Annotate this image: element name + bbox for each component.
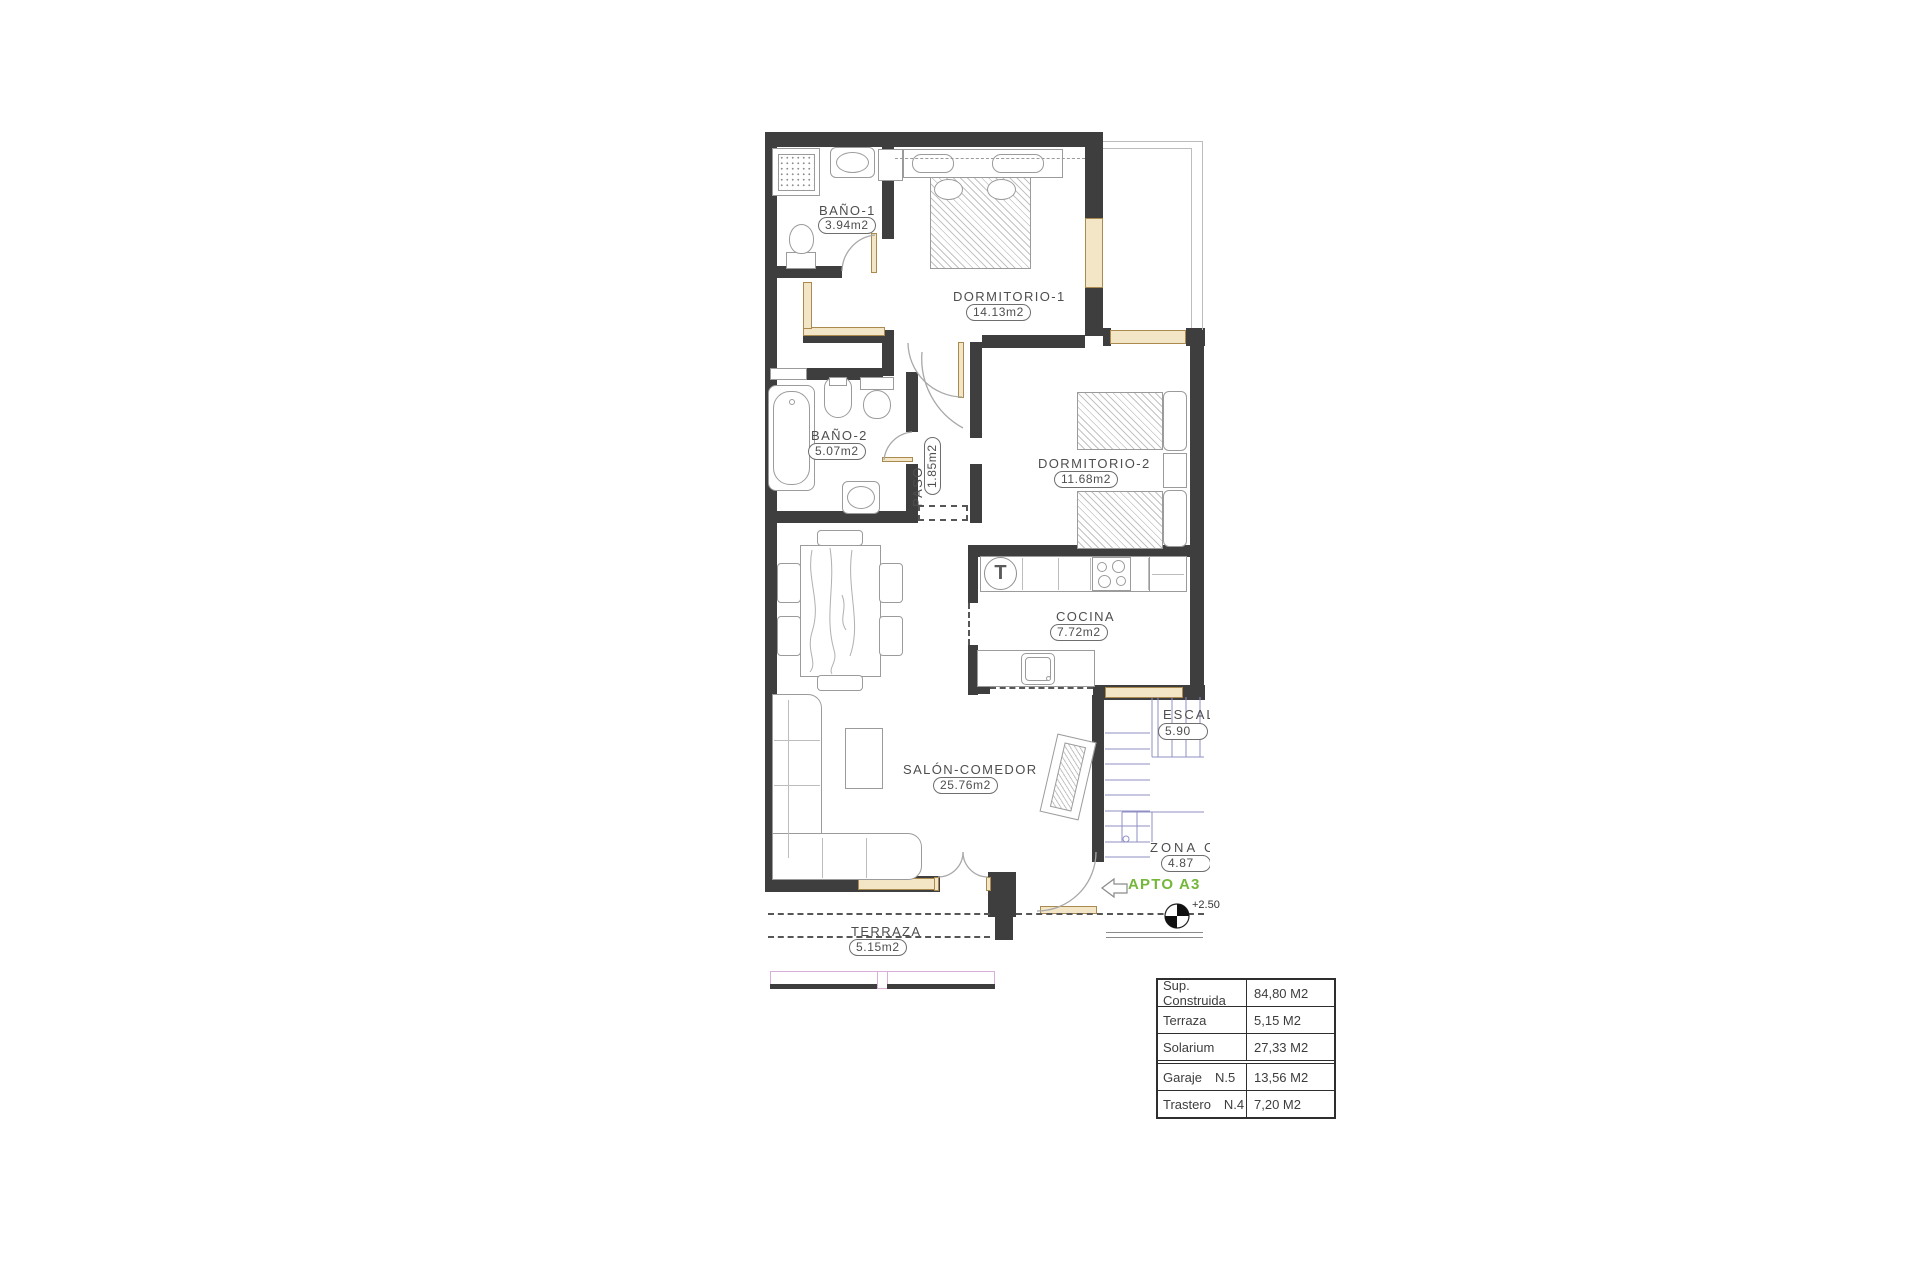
row-label-text: Garaje xyxy=(1163,1070,1202,1085)
room-label-bano2: BAÑO-2 xyxy=(811,428,868,443)
door-arc-dormitorio2 xyxy=(922,352,963,428)
room-area-dormitorio2: 11.68m2 xyxy=(1054,471,1118,488)
door-arc-bano1 xyxy=(842,235,875,271)
door-arc-dormitorio1 xyxy=(908,343,962,397)
table-row: Solarium 27,33 M2 xyxy=(1158,1033,1334,1061)
entry-door-arc xyxy=(1037,852,1096,911)
row-label-text: Sup. Construida xyxy=(1163,978,1246,1008)
apartment-label: APTO A3 xyxy=(1128,876,1201,893)
grain-line xyxy=(810,550,815,672)
door-arc-bano2 xyxy=(884,432,912,460)
floor-plan: T xyxy=(0,0,1920,1280)
room-label-escalera: ESCAL xyxy=(1163,707,1210,722)
row-label-text: Trastero xyxy=(1163,1097,1211,1112)
table-row-value: 7,20 M2 xyxy=(1247,1097,1334,1112)
room-area-paso: 1.85m2 xyxy=(924,437,941,495)
room-label-terraza: TERRAZA xyxy=(851,924,921,939)
table-row-label: TrasteroN.4 xyxy=(1158,1091,1247,1117)
zona-comun-label-clip: ZONA C 4.87 xyxy=(1103,838,1210,878)
table-row-label: Sup. Construida xyxy=(1158,980,1247,1006)
table-row-label: Terraza xyxy=(1158,1007,1247,1033)
table-row: GarajeN.5 13,56 M2 xyxy=(1158,1063,1334,1090)
grain-knot xyxy=(842,595,846,630)
room-area-cocina: 7.72m2 xyxy=(1050,624,1108,641)
door-swing-arcs xyxy=(842,235,1096,911)
room-label-dormitorio1: DORMITORIO-1 xyxy=(953,289,1066,304)
row-label-text: Solarium xyxy=(1163,1040,1214,1055)
table-row: Terraza 5,15 M2 xyxy=(1158,1006,1334,1033)
grain-line xyxy=(830,548,835,674)
grain-line xyxy=(850,550,855,656)
row-unit-number: N.5 xyxy=(1215,1070,1235,1085)
table-row-value: 5,15 M2 xyxy=(1247,1013,1334,1028)
table-row-label: Solarium xyxy=(1158,1034,1247,1060)
table-row: TrasteroN.4 7,20 M2 xyxy=(1158,1090,1334,1117)
room-label-salon: SALÓN-COMEDOR xyxy=(903,762,1038,777)
table-row-value: 13,56 M2 xyxy=(1247,1070,1334,1085)
table-row-label: GarajeN.5 xyxy=(1158,1064,1247,1090)
room-area-bano1: 3.94m2 xyxy=(818,217,876,234)
room-label-zona-comun: ZONA C xyxy=(1150,840,1210,855)
room-label-dormitorio2: DORMITORIO-2 xyxy=(1038,456,1151,471)
escalera-label-clip: ESCAL 5.90 xyxy=(1103,703,1210,748)
level-mark: +2.50 xyxy=(1192,899,1220,911)
level-marker-icon xyxy=(1165,904,1189,928)
table-wood-grain xyxy=(810,548,855,674)
room-area-escalera: 5.90 xyxy=(1158,723,1208,740)
room-label-bano1: BAÑO-1 xyxy=(819,203,876,218)
area-summary-table: Sup. Construida 84,80 M2 Terraza 5,15 M2… xyxy=(1156,978,1336,1119)
room-area-bano2: 5.07m2 xyxy=(808,443,866,460)
french-door-arc-left xyxy=(938,852,963,877)
table-row: Sup. Construida 84,80 M2 xyxy=(1158,980,1334,1006)
room-label-cocina: COCINA xyxy=(1056,609,1115,624)
row-label-text: Terraza xyxy=(1163,1013,1206,1028)
table-row-value: 27,33 M2 xyxy=(1247,1040,1334,1055)
room-label-paso: PASO xyxy=(910,466,925,507)
table-row-value: 84,80 M2 xyxy=(1247,986,1334,1001)
linework-layer xyxy=(0,0,1920,1280)
room-area-zona-comun: 4.87 xyxy=(1161,855,1210,872)
room-area-terraza: 5.15m2 xyxy=(849,939,907,956)
entry-arrow-icon xyxy=(1102,879,1127,897)
room-area-salon: 25.76m2 xyxy=(933,777,998,794)
room-area-dormitorio1: 14.13m2 xyxy=(966,304,1031,321)
row-unit-number: N.4 xyxy=(1224,1097,1244,1112)
french-door-arc-right xyxy=(963,852,988,877)
